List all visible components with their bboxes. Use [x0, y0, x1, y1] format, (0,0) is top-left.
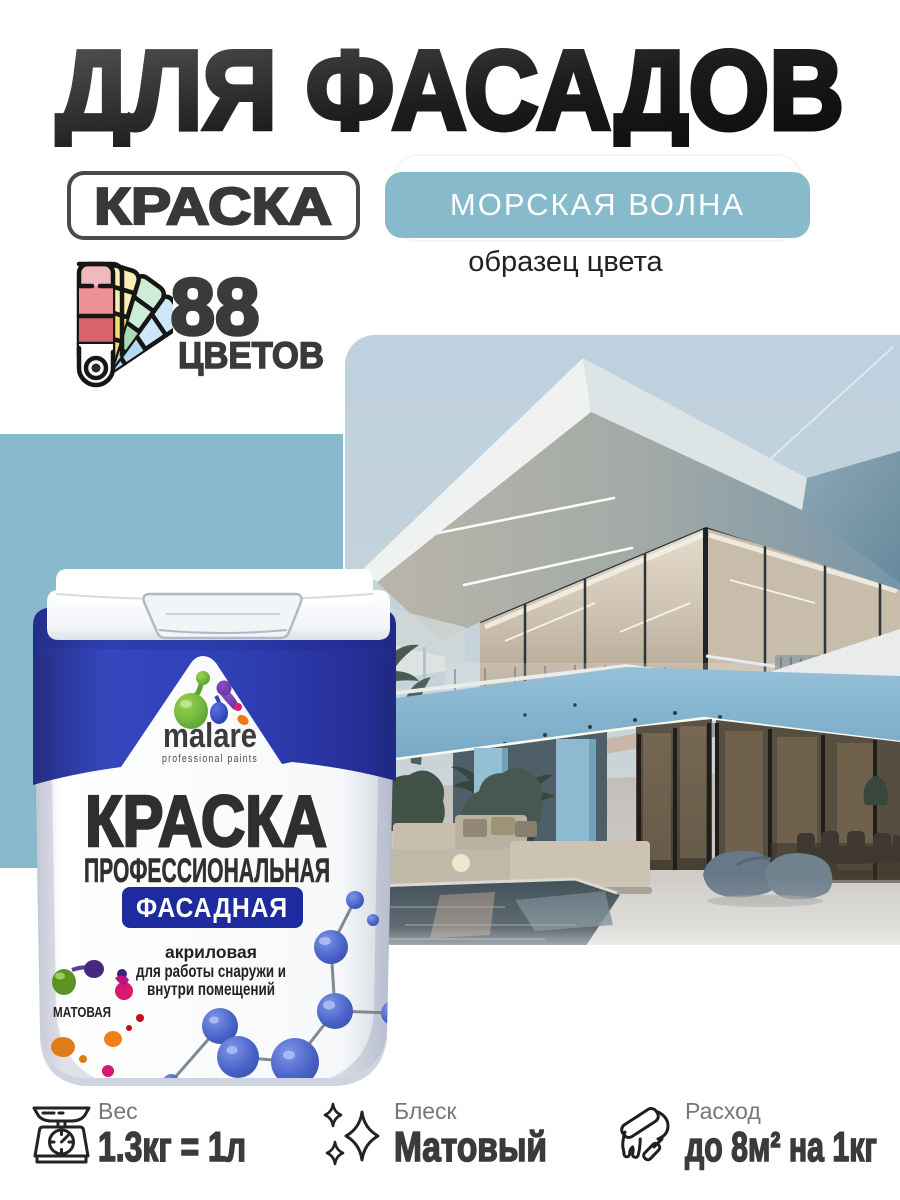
svg-text:ФАСАДНАЯ: ФАСАДНАЯ — [136, 892, 288, 923]
svg-text:МАТОВАЯ: МАТОВАЯ — [53, 1004, 111, 1021]
svg-text:до 8м² на 1кг: до 8м² на 1кг — [685, 1124, 877, 1170]
svg-text:Матовый: Матовый — [394, 1124, 547, 1170]
svg-text:professional paints: professional paints — [162, 753, 258, 765]
svg-text:ЦВЕТОВ: ЦВЕТОВ — [178, 335, 324, 376]
svg-text:КРАСКА: КРАСКА — [85, 782, 327, 862]
svg-text:malare: malare — [163, 717, 257, 755]
svg-text:ДЛЯ ФАСАДОВ: ДЛЯ ФАСАДОВ — [56, 28, 844, 147]
svg-text:ПРОФЕССИОНАЛЬНАЯ: ПРОФЕССИОНАЛЬНАЯ — [84, 852, 330, 890]
svg-text:для работы снаружи и: для работы снаружи и — [136, 961, 286, 981]
svg-text:внутри помещений: внутри помещений — [147, 979, 275, 999]
svg-text:1.3кг = 1л: 1.3кг = 1л — [98, 1124, 246, 1170]
svg-text:акриловая: акриловая — [165, 942, 257, 962]
svg-text:КРАСКА: КРАСКА — [94, 178, 332, 236]
